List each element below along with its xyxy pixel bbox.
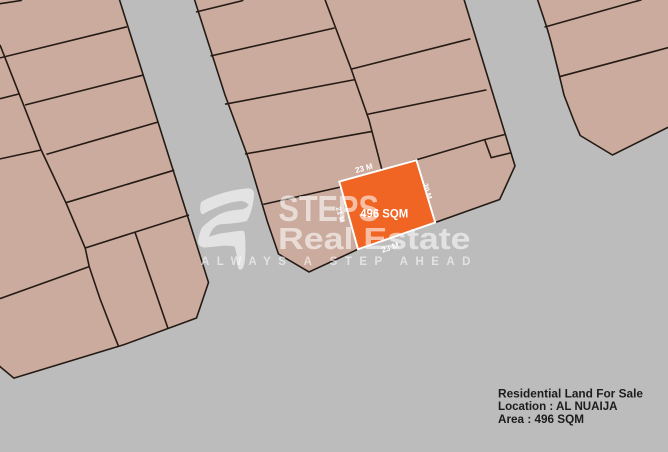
svg-text:496 SQM: 496 SQM	[360, 206, 408, 220]
svg-text:Area : 496 SQM: Area : 496 SQM	[498, 412, 584, 426]
svg-text:Real Estate: Real Estate	[278, 221, 471, 256]
